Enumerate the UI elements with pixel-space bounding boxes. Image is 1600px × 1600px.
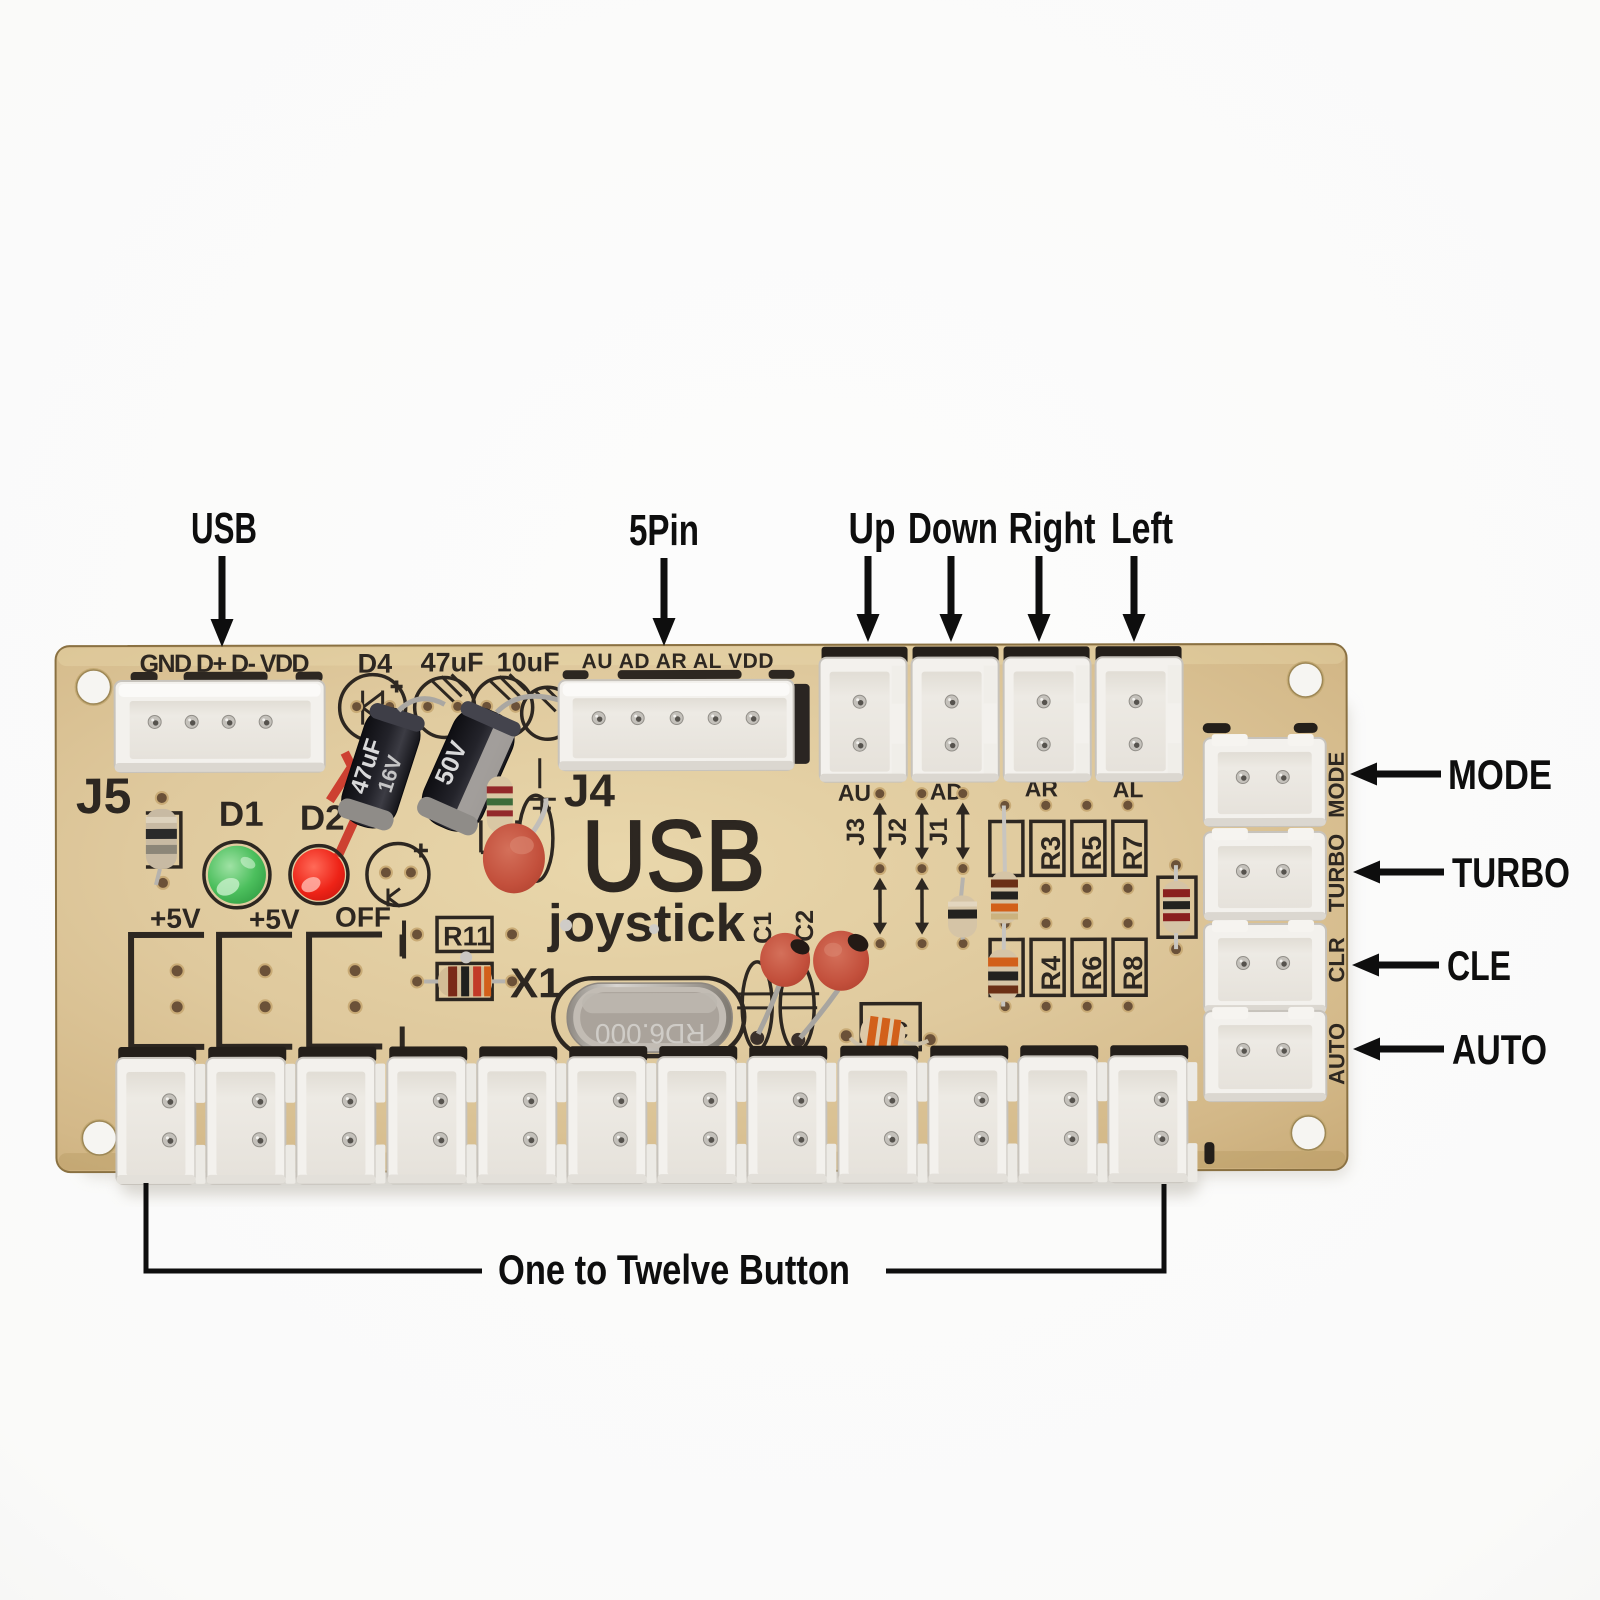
svg-text:AUTO: AUTO	[1324, 1023, 1349, 1085]
svg-text:Down: Down	[908, 504, 998, 553]
svg-text:R3: R3	[1036, 836, 1066, 871]
svg-text:5Pin: 5Pin	[629, 506, 699, 555]
svg-text:OFF: OFF	[335, 902, 391, 933]
svg-text:TURBO: TURBO	[1324, 834, 1349, 912]
svg-text:TURBO: TURBO	[1452, 849, 1570, 896]
svg-text:J2: J2	[884, 818, 912, 846]
svg-text:AU AD AR AL VDD: AU AD AR AL VDD	[582, 650, 774, 673]
svg-text:R6: R6	[1077, 956, 1107, 991]
svg-text:+5V: +5V	[150, 903, 201, 934]
svg-text:J5: J5	[76, 768, 132, 824]
svg-text:Right: Right	[1009, 504, 1096, 553]
svg-text:RD6.000: RD6.000	[595, 1018, 706, 1049]
svg-text:One to Twelve Button: One to Twelve Button	[498, 1246, 850, 1293]
svg-text:R8: R8	[1118, 956, 1148, 991]
svg-text:AU: AU	[838, 780, 871, 806]
svg-text:D1: D1	[219, 795, 264, 834]
svg-text:joystick: joystick	[547, 894, 746, 953]
svg-text:CLE: CLE	[1447, 942, 1511, 989]
svg-text:X1: X1	[510, 959, 561, 1006]
svg-text:Up: Up	[849, 504, 896, 553]
svg-text:R11: R11	[443, 921, 491, 951]
svg-text:J1: J1	[925, 818, 953, 846]
svg-text:MODE: MODE	[1324, 752, 1349, 818]
svg-text:Left: Left	[1111, 504, 1173, 553]
svg-text:10uF: 10uF	[497, 647, 560, 677]
svg-text:MODE: MODE	[1448, 751, 1552, 798]
svg-text:CLR: CLR	[1324, 937, 1349, 982]
svg-text:AUTO: AUTO	[1452, 1026, 1547, 1073]
svg-text:47uF: 47uF	[421, 647, 484, 677]
svg-text:+5V: +5V	[249, 904, 300, 935]
svg-text:R5: R5	[1077, 836, 1107, 871]
svg-text:R7: R7	[1118, 836, 1148, 871]
svg-text:R4: R4	[1036, 956, 1066, 991]
svg-text:J3: J3	[842, 818, 870, 846]
svg-text:USB: USB	[191, 504, 257, 553]
svg-text:D2: D2	[300, 799, 345, 838]
